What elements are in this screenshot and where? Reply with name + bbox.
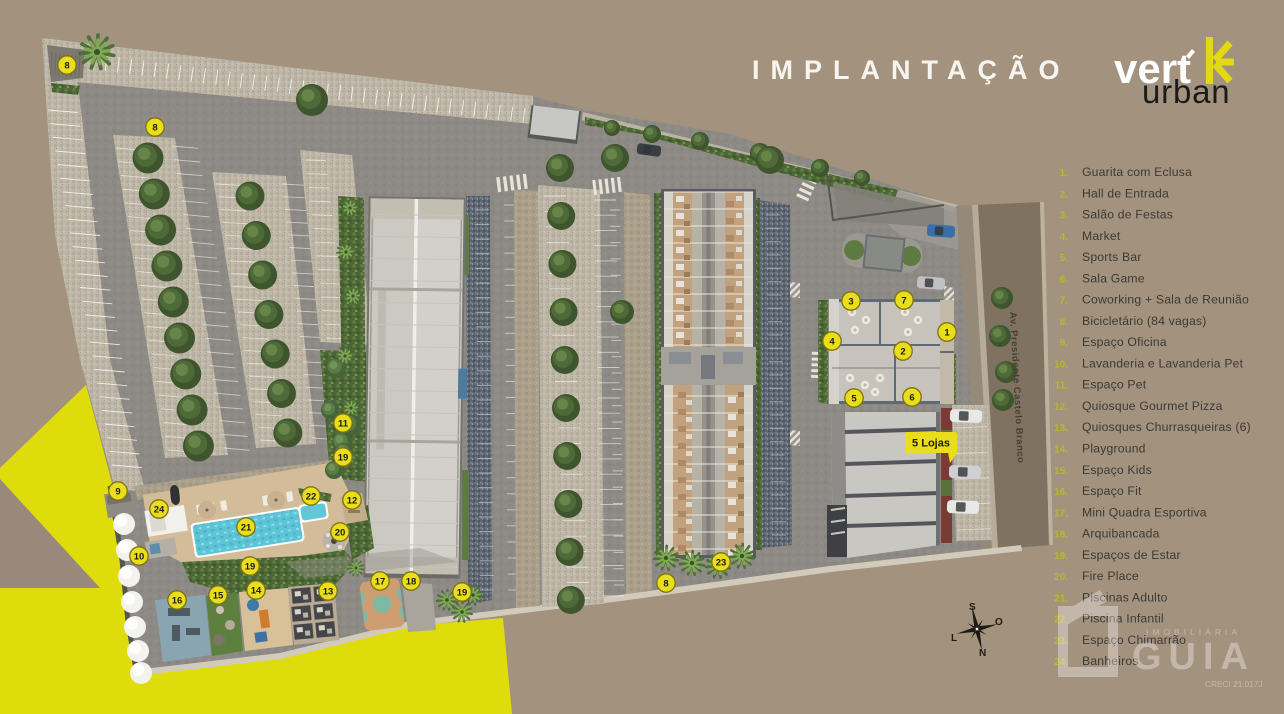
svg-text:3.: 3.	[1060, 211, 1069, 222]
svg-text:18.: 18.	[1054, 530, 1068, 541]
svg-text:7.: 7.	[1060, 296, 1069, 307]
svg-text:S: S	[969, 602, 976, 613]
svg-text:Fire Place: Fire Place	[1082, 569, 1139, 583]
svg-text:20: 20	[335, 527, 346, 538]
svg-text:Market: Market	[1082, 229, 1121, 243]
svg-text:14: 14	[251, 585, 262, 596]
svg-text:15.: 15.	[1054, 466, 1068, 477]
svg-text:16.: 16.	[1054, 487, 1068, 498]
svg-text:6: 6	[909, 392, 914, 403]
svg-text:3: 3	[848, 296, 853, 307]
svg-text:N: N	[979, 648, 986, 659]
svg-text:O: O	[995, 617, 1003, 628]
svg-text:9.: 9.	[1060, 338, 1069, 349]
svg-text:14.: 14.	[1054, 445, 1068, 456]
svg-text:Bicicletário (84 vagas): Bicicletário (84 vagas)	[1082, 314, 1207, 328]
svg-text:17.: 17.	[1054, 508, 1068, 519]
svg-text:8: 8	[64, 60, 69, 71]
svg-text:2: 2	[900, 346, 905, 357]
svg-text:24: 24	[154, 504, 165, 515]
svg-text:7: 7	[901, 295, 906, 306]
svg-text:9: 9	[115, 486, 120, 497]
svg-text:19.: 19.	[1054, 551, 1068, 562]
svg-text:18: 18	[406, 576, 417, 587]
svg-text:Quiosques Churrasqueiras (6): Quiosques Churrasqueiras (6)	[1082, 420, 1251, 434]
svg-text:12.: 12.	[1054, 402, 1068, 413]
svg-text:15: 15	[213, 590, 224, 601]
svg-text:8: 8	[663, 578, 668, 589]
svg-text:2.: 2.	[1060, 189, 1069, 200]
svg-text:Espaço Oficina: Espaço Oficina	[1082, 335, 1167, 349]
svg-text:CRECI 21.017J: CRECI 21.017J	[1205, 679, 1263, 689]
svg-text:IMPLANTAÇÃO: IMPLANTAÇÃO	[752, 54, 1070, 85]
svg-text:21: 21	[241, 522, 252, 533]
svg-text:Hall de Entrada: Hall de Entrada	[1082, 186, 1169, 200]
svg-text:L: L	[951, 633, 957, 644]
svg-text:4: 4	[829, 336, 835, 347]
svg-text:Espaço Pet: Espaço Pet	[1082, 378, 1147, 392]
svg-text:1: 1	[944, 327, 950, 338]
svg-text:16: 16	[172, 595, 183, 606]
svg-text:10.: 10.	[1054, 359, 1068, 370]
svg-text:22: 22	[306, 491, 317, 502]
svg-text:4.: 4.	[1060, 232, 1069, 243]
svg-text:21.: 21.	[1054, 593, 1068, 604]
svg-text:Mini Quadra Esportiva: Mini Quadra Esportiva	[1082, 505, 1207, 519]
svg-text:11: 11	[338, 418, 349, 429]
svg-text:8.: 8.	[1060, 317, 1069, 328]
svg-text:19: 19	[245, 561, 256, 572]
svg-text:Sala Game: Sala Game	[1082, 271, 1145, 285]
svg-text:19: 19	[457, 587, 468, 598]
svg-text:5 Lojas: 5 Lojas	[912, 438, 950, 450]
svg-text:Espaço Fit: Espaço Fit	[1082, 484, 1142, 498]
svg-text:Espaço Kids: Espaço Kids	[1082, 463, 1152, 477]
svg-text:20.: 20.	[1054, 572, 1068, 583]
svg-text:10: 10	[134, 551, 145, 562]
svg-text:6.: 6.	[1060, 274, 1069, 285]
svg-text:Sports Bar: Sports Bar	[1082, 250, 1142, 264]
svg-text:13: 13	[323, 586, 334, 597]
svg-text:12: 12	[347, 495, 358, 506]
svg-text:11.: 11.	[1055, 381, 1069, 392]
svg-text:Guarita com Eclusa: Guarita com Eclusa	[1082, 165, 1192, 179]
svg-text:5.: 5.	[1060, 253, 1069, 264]
svg-text:23: 23	[716, 557, 727, 568]
svg-text:1.: 1.	[1060, 168, 1069, 179]
svg-text:Espaços de Estar: Espaços de Estar	[1082, 548, 1181, 562]
svg-text:Lavanderia e Lavanderia Pet: Lavanderia e Lavanderia Pet	[1082, 356, 1244, 370]
svg-text:GUIA: GUIA	[1132, 636, 1255, 678]
svg-text:Quiosque Gourmet Pizza: Quiosque Gourmet Pizza	[1082, 399, 1223, 413]
svg-text:Coworking + Sala de Reunião: Coworking + Sala de Reunião	[1082, 293, 1249, 307]
svg-text:Arquibancada: Arquibancada	[1082, 527, 1160, 541]
svg-text:13.: 13.	[1054, 423, 1068, 434]
svg-text:Salão de Festas: Salão de Festas	[1082, 208, 1173, 222]
svg-text:19: 19	[338, 452, 349, 463]
svg-text:Playground: Playground	[1082, 442, 1146, 456]
svg-text:8: 8	[152, 122, 157, 133]
svg-text:5: 5	[851, 393, 857, 404]
svg-text:17: 17	[375, 576, 386, 587]
svg-text:urban: urban	[1142, 73, 1230, 110]
